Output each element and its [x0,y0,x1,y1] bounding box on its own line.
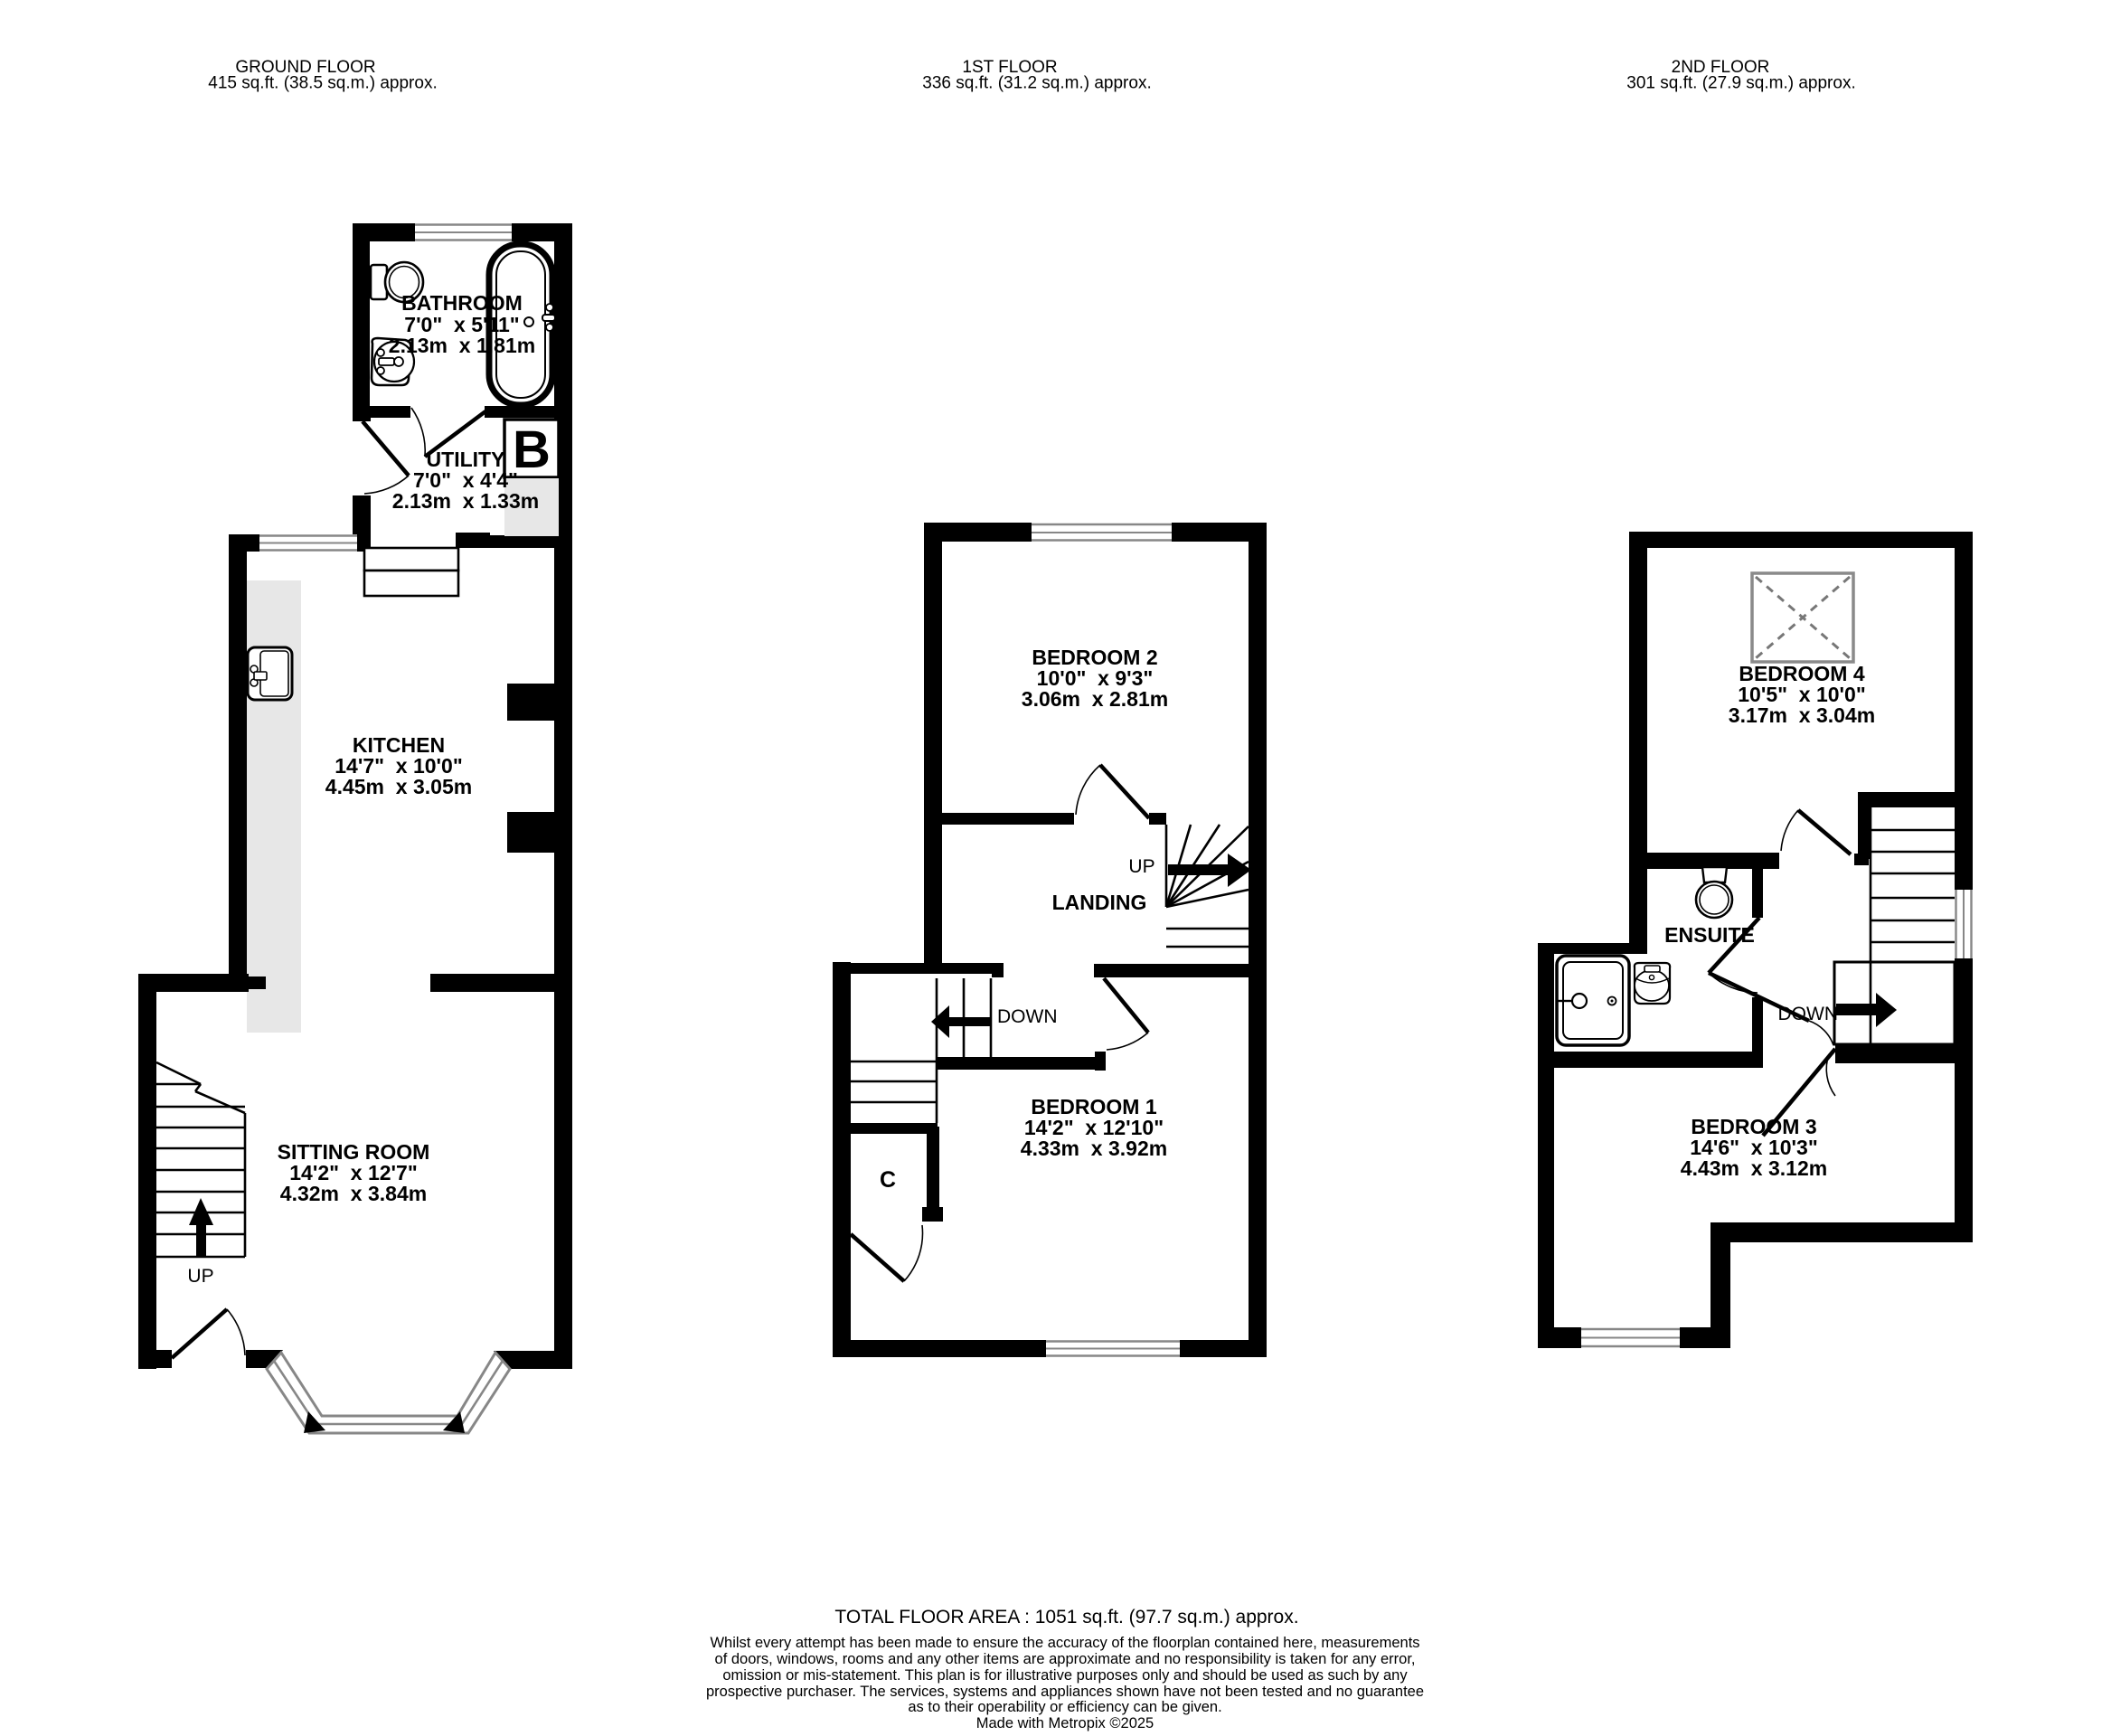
svg-text:Made with Metropix ©2025: Made with Metropix ©2025 [976,1715,1154,1731]
svg-text:UP: UP [1128,856,1154,877]
svg-text:336 sq.ft. (31.2 sq.m.) approx: 336 sq.ft. (31.2 sq.m.) approx. [922,74,1151,93]
svg-text:UP: UP [187,1266,213,1287]
svg-text:ENSUITE: ENSUITE [1664,923,1755,947]
svg-text:3.06m x 2.81m: 3.06m x 2.81m [1022,687,1168,711]
svg-text:415 sq.ft. (38.5 sq.m.) approx: 415 sq.ft. (38.5 sq.m.) approx. [208,74,437,93]
svg-text:2.13m x 1.33m: 2.13m x 1.33m [392,489,539,513]
svg-text:301 sq.ft. (27.9 sq.m.) approx: 301 sq.ft. (27.9 sq.m.) approx. [1626,74,1855,93]
svg-text:4.43m x 3.12m: 4.43m x 3.12m [1681,1156,1827,1180]
svg-text:of doors, windows, rooms and a: of doors, windows, rooms and any other i… [715,1651,1416,1667]
svg-text:omission or mis-statement. Thi: omission or mis-statement. This plan is … [722,1667,1408,1684]
svg-text:BATHROOM: BATHROOM [401,291,523,315]
svg-text:2.13m x 1.81m: 2.13m x 1.81m [389,334,535,357]
svg-text:B: B [513,420,551,479]
svg-text:DOWN: DOWN [997,1006,1058,1027]
svg-text:Whilst every attempt has been: Whilst every attempt has been made to en… [710,1635,1419,1651]
svg-text:3.17m x 3.04m: 3.17m x 3.04m [1729,703,1875,727]
svg-text:C: C [880,1167,896,1193]
svg-text:prospective purchaser. The ser: prospective purchaser. The services, sys… [706,1684,1424,1700]
svg-text:TOTAL FLOOR AREA : 1051 sq.ft.: TOTAL FLOOR AREA : 1051 sq.ft. (97.7 sq.… [834,1607,1298,1627]
svg-text:4.33m x 3.92m: 4.33m x 3.92m [1021,1137,1167,1160]
svg-text:4.32m x 3.84m: 4.32m x 3.84m [280,1182,427,1205]
svg-text:LANDING: LANDING [1052,891,1147,914]
svg-text:as to their operability or eff: as to their operability or efficiency ca… [908,1699,1221,1715]
svg-text:4.45m x 3.05m: 4.45m x 3.05m [325,775,472,798]
